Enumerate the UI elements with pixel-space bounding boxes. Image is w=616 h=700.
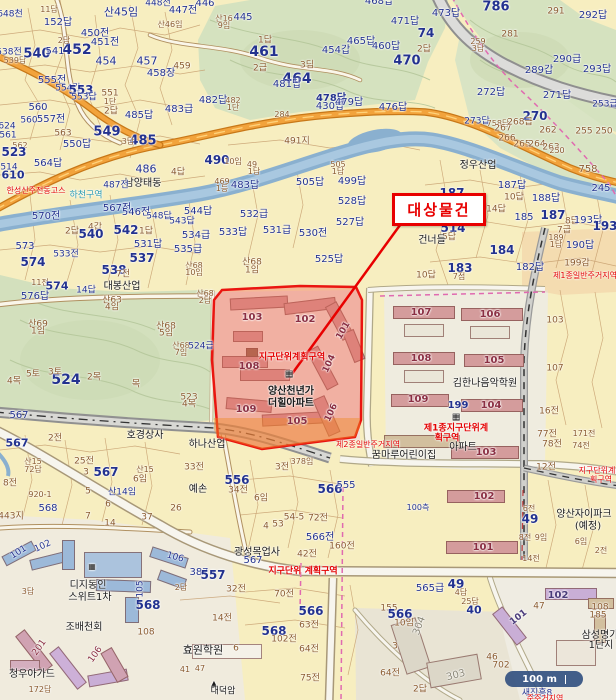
map-label: 4목 xyxy=(182,401,196,410)
map-label: 75전 xyxy=(300,675,320,684)
map-label: 538 xyxy=(101,264,126,276)
map-label: 292답 xyxy=(579,11,607,21)
map-label: 273답 xyxy=(464,118,489,127)
map-label: 264 xyxy=(528,141,545,150)
map-label: 5 xyxy=(85,488,91,497)
map-label: 8전 xyxy=(519,534,531,542)
map-label: 293답 xyxy=(583,65,611,75)
map-label: 37 xyxy=(141,514,152,523)
map-label: 2답 xyxy=(175,584,187,592)
map-label: 566 xyxy=(298,605,323,617)
map-label: 284 xyxy=(274,111,289,119)
map-label: 101 xyxy=(509,609,529,628)
map-label: 457 xyxy=(137,56,158,67)
map-label: 광성목업사 xyxy=(234,548,280,558)
map-label: 101 xyxy=(9,545,28,562)
map-label: 464 xyxy=(282,72,311,86)
map-label: 560 xyxy=(28,103,47,113)
map-label: 14답 xyxy=(486,206,506,215)
map-label: 102 xyxy=(548,591,569,601)
map-label: 10답 xyxy=(416,272,436,281)
map-label: 542 xyxy=(113,224,138,236)
map-label: 호경상사 xyxy=(127,431,164,441)
map-label: 효원학원 xyxy=(183,645,223,656)
map-label: 574 xyxy=(46,281,69,292)
map-label: 3답 xyxy=(122,138,134,146)
map-label: 제1종지구단위계 xyxy=(424,425,488,434)
map-label: 443지 xyxy=(0,513,24,522)
map-label: 4임 xyxy=(105,304,119,313)
map-label: 26 xyxy=(170,505,181,514)
map-label: 473답 xyxy=(432,9,460,19)
map-label: 7 xyxy=(85,513,91,522)
map-label: 648천 xyxy=(0,11,23,20)
map-label: 454갑 xyxy=(322,46,350,56)
map-label: 567전 xyxy=(103,204,131,214)
map-label: 11답 xyxy=(40,6,58,14)
map-label: 청우아가드 xyxy=(9,670,55,680)
map-label: 양산자이파크 xyxy=(556,510,611,520)
map-label: 430답 xyxy=(316,102,344,112)
map-label: 272답 xyxy=(477,88,505,98)
map-label: 산68 xyxy=(156,323,176,332)
map-label: 10임 xyxy=(224,158,242,166)
map-label: 524 xyxy=(51,373,80,387)
map-label: 102전 xyxy=(271,636,296,645)
map-label: 산15 xyxy=(136,466,154,474)
map-label: 265 xyxy=(513,141,530,150)
map-label: 459 xyxy=(173,63,190,72)
map-label: 1답 xyxy=(139,228,153,237)
map-label: 573 xyxy=(15,242,34,252)
map-label: 551 xyxy=(101,90,118,99)
map-label: 새진흥8 xyxy=(522,690,553,699)
map-label: 530전 xyxy=(299,229,327,239)
map-label: 꿈마루어린이집 xyxy=(372,451,436,461)
map-label: 64전 xyxy=(380,670,400,679)
target-callout-label: 대상물건 xyxy=(407,199,470,220)
map-label: 6 xyxy=(105,501,111,510)
map-label: 107 xyxy=(411,308,432,318)
map-label: 460답 xyxy=(372,42,400,52)
map-label: 109 xyxy=(236,405,257,415)
map-label: 102 xyxy=(295,315,316,325)
map-label: 566 xyxy=(387,608,412,620)
map-label: 스위트1차 xyxy=(68,593,111,603)
map-label: 77전 xyxy=(537,431,557,440)
map-label: 281 xyxy=(501,31,518,40)
map-label: 566전 xyxy=(306,533,334,543)
map-label: 33전 xyxy=(184,464,204,473)
map-label: 108 xyxy=(239,362,260,372)
map-label: 538전 xyxy=(0,49,22,58)
map-label: 557전 xyxy=(37,115,65,125)
map-label: 531급 xyxy=(263,226,291,236)
map-label: 1임 xyxy=(31,328,45,337)
map-label: 47 xyxy=(533,603,544,612)
map-label: 40 xyxy=(466,605,481,616)
map-label: 524급 xyxy=(188,343,213,352)
map-label: 193답 xyxy=(574,216,602,226)
map-label: 2전 xyxy=(48,435,62,444)
map-label: 하천구역 xyxy=(69,192,102,201)
scale-bar-label: 100 m xyxy=(522,674,557,685)
map-label: 104 xyxy=(322,354,338,375)
map-label: 산45임 xyxy=(104,7,138,18)
map-label: 2답 xyxy=(65,228,79,237)
map-label: 505 xyxy=(330,161,345,169)
map-label: 5토 xyxy=(26,371,40,380)
map-label: 268급 xyxy=(507,119,532,128)
map-label: 3 xyxy=(83,469,89,478)
map-label: 483급 xyxy=(165,105,193,115)
map-label: 188답 xyxy=(532,194,560,204)
map-label: 531답 xyxy=(134,240,162,250)
map-label: 대봉산업 xyxy=(104,282,141,292)
map-label: 567 xyxy=(6,438,29,449)
map-label: 253급 xyxy=(592,101,616,110)
map-label: 557 xyxy=(200,569,225,581)
map-label: 566 xyxy=(317,483,342,495)
map-label: 14전 xyxy=(522,555,540,563)
map-label: 103 xyxy=(476,448,497,458)
map-label: 185 xyxy=(514,213,533,223)
map-label: 74 xyxy=(418,27,435,39)
map-label: 산14임 xyxy=(108,489,136,498)
map-label: 7급 xyxy=(557,227,571,236)
map-label: 291 xyxy=(547,8,564,17)
map-label: 549 xyxy=(93,126,120,139)
map-label: 70전 xyxy=(274,591,294,600)
map-label: 3 xyxy=(392,643,398,652)
map-label: 54-5 xyxy=(284,514,304,523)
map-label: 25답 xyxy=(461,598,479,606)
map-label: 6임 xyxy=(133,476,147,485)
map-label: 106 xyxy=(480,310,501,320)
map-label: 555 xyxy=(336,481,355,491)
map-label: 남양태동 xyxy=(125,179,162,189)
map-label: 451전 xyxy=(91,38,119,48)
map-label: 2답 xyxy=(104,108,118,117)
map-label: 487전 xyxy=(103,182,128,191)
map-label: 4답 xyxy=(171,169,185,178)
map-label: 제2종일반주거지역 xyxy=(336,441,400,449)
map-label: 193 xyxy=(592,220,616,232)
map-label: 49 xyxy=(522,513,539,525)
map-label: 10임 xyxy=(394,620,414,629)
map-label: 564답 xyxy=(34,159,62,169)
map-label: 2답 xyxy=(417,46,431,55)
map-label: 478답 xyxy=(316,94,346,104)
map-label: 533답 xyxy=(219,228,247,238)
map-label: 목 xyxy=(132,381,140,390)
map-label: 106 xyxy=(166,551,185,564)
map-label: 562 xyxy=(12,142,27,150)
map-label: 2답 xyxy=(413,686,427,695)
map-label: 102 xyxy=(33,539,52,554)
map-label: ▲ xyxy=(211,680,217,688)
map-label: 461 xyxy=(249,45,278,59)
map-label: 172답 xyxy=(29,686,52,694)
map-label: 14전 xyxy=(212,615,232,624)
map-label: 1답 xyxy=(248,168,260,176)
map-label: 250 xyxy=(549,147,564,155)
map-label: 산15 xyxy=(24,458,42,466)
map-label: 제1종일반주거지역 xyxy=(553,272,616,280)
map-label: 14답 xyxy=(76,287,96,296)
map-label: 452 xyxy=(62,43,91,57)
map-label: 5답 xyxy=(442,234,456,243)
map-label: 산63 xyxy=(102,297,122,306)
map-label: (예정) xyxy=(575,522,601,532)
map-label: 155 xyxy=(380,605,397,614)
map-label: 1답 xyxy=(258,37,272,46)
map-label: 41 xyxy=(180,666,190,674)
map-label: 4 xyxy=(263,523,269,532)
map-label: 조배천회 xyxy=(66,623,103,633)
map-label: 152답 xyxy=(44,18,72,28)
map-label: 삼성명가 xyxy=(582,631,616,641)
scale-bar: 100 m xyxy=(505,671,583,687)
map-label: 53 xyxy=(272,521,283,530)
map-label: 하나산업 xyxy=(189,440,226,450)
map-label: 266 xyxy=(498,135,515,144)
map-label: 지구단위계획구역 xyxy=(259,354,325,363)
map-label: 263 xyxy=(542,144,559,153)
map-label: 527답 xyxy=(336,218,364,228)
map-label: 103 xyxy=(546,317,563,326)
map-label: 568 xyxy=(135,599,160,611)
map-label: 525답 xyxy=(315,255,343,265)
map-label: 576답 xyxy=(21,292,49,302)
map-label: 2답 xyxy=(199,297,211,305)
map-label: 106 xyxy=(324,403,340,424)
map-label: 105 xyxy=(287,417,308,427)
map-label: 702 xyxy=(492,662,509,671)
map-label: 539답 xyxy=(4,57,27,65)
map-label: 더힐아파트 xyxy=(268,399,314,409)
map-label: 49 xyxy=(247,161,257,169)
map-label: 485 xyxy=(129,135,156,148)
map-label: 14 xyxy=(104,520,115,529)
map-label: 1단 xyxy=(104,98,116,106)
map-label: 199 xyxy=(448,401,469,411)
map-label: 160전 xyxy=(329,543,354,552)
map-label: 72전 xyxy=(308,515,328,524)
map-label: 산68 xyxy=(242,259,262,268)
map-label: 74전 xyxy=(572,442,590,450)
map-label: 303 xyxy=(445,669,466,684)
scale-bar-tick xyxy=(565,675,566,684)
map-label: 25전 xyxy=(74,458,94,467)
map-label: 553답 xyxy=(71,94,96,103)
map-label: 486 xyxy=(136,164,157,175)
map-label: 245 xyxy=(591,184,610,194)
map-label: 570전 xyxy=(32,212,60,222)
map-label: 465답 xyxy=(347,37,375,47)
map-label: 101 xyxy=(335,321,352,342)
map-label: 468답 xyxy=(365,0,393,7)
map-label: 104 xyxy=(481,401,502,411)
map-label: 445 xyxy=(233,13,252,23)
map-label: 양산천년가 xyxy=(268,387,314,397)
map-label: 565급 xyxy=(416,584,444,594)
map-label: 469 xyxy=(214,178,229,186)
map-label: 6임 xyxy=(254,495,268,504)
map-label: 610 xyxy=(2,170,25,181)
target-callout[interactable]: 대상물건 xyxy=(392,193,486,226)
map-label: 499답 xyxy=(338,177,366,187)
map-label: 481답 xyxy=(273,80,301,90)
map-label: 102 xyxy=(474,492,495,502)
map-label: 171전 xyxy=(573,430,596,438)
map-label: 786 xyxy=(482,1,509,14)
map-label: 187답 xyxy=(498,181,526,191)
map-label: 4답 xyxy=(455,589,467,597)
labels-layer: 648천11답152답산45임448전447전산46임450전451전4522답… xyxy=(0,0,616,700)
map-label: 479답 xyxy=(335,98,363,108)
map-label: 182답 xyxy=(516,263,544,273)
map-label: ▦ xyxy=(452,414,461,423)
map-label: 11전 xyxy=(31,279,49,287)
map-label: 디지동인 xyxy=(70,581,107,591)
map-label: 535급 xyxy=(174,245,202,255)
map-label: 32전 xyxy=(226,586,246,595)
map-label: 산46임 xyxy=(158,21,183,29)
map-label: 107 xyxy=(546,365,563,374)
map-label: 568 xyxy=(261,625,286,637)
map-label: 920-1 xyxy=(28,491,51,499)
map-label: 건너들 xyxy=(418,236,446,246)
map-label: 획구역 xyxy=(590,476,612,484)
map-label: 259 xyxy=(470,38,485,46)
map-label: 108 xyxy=(591,604,608,613)
map-label: 290급 xyxy=(553,55,581,65)
map-label: 568 xyxy=(38,504,57,514)
map-label: 106 xyxy=(87,645,104,664)
map-label: 9임 xyxy=(535,534,547,542)
map-label: 6 xyxy=(233,645,239,654)
map-label: 2답 xyxy=(58,37,70,45)
map-label: 101 xyxy=(473,543,494,553)
map-label: 482답 xyxy=(199,96,227,106)
map-label: 3전 xyxy=(275,464,289,473)
map-label: 482 xyxy=(225,97,240,105)
map-label: 3딤 xyxy=(300,62,314,71)
map-label: 447전 xyxy=(169,6,197,16)
map-label: 8전 xyxy=(3,480,17,489)
map-label: 63전 xyxy=(299,622,319,631)
map-label: 490 xyxy=(204,154,229,166)
map-label: 554간 xyxy=(55,85,80,94)
map-label: 556 xyxy=(224,474,249,486)
map-label: 567 xyxy=(243,556,262,566)
map-label: 78전 xyxy=(542,441,562,450)
map-label: 540 xyxy=(78,228,103,240)
map-label: 1임 xyxy=(245,267,259,276)
map-label: 109 xyxy=(408,395,429,405)
map-label: 준주거지역 xyxy=(527,695,564,700)
map-label: 3답 xyxy=(472,45,484,53)
map-label: 523 xyxy=(1,146,26,158)
map-label: 1답 xyxy=(332,168,344,176)
map-label: 4갑 xyxy=(88,224,102,233)
map-label: 16전 xyxy=(539,408,559,417)
map-label: 476답 xyxy=(379,103,407,113)
map-label: 8답 xyxy=(565,218,579,227)
map-label: 534급 xyxy=(182,231,210,241)
map-label: 183 xyxy=(447,262,472,274)
map-label: 105 xyxy=(137,580,146,597)
map-label: 184 xyxy=(489,244,514,256)
map-label: 537 xyxy=(129,252,154,264)
map-label: 561 xyxy=(0,132,17,141)
map-label: 산68 xyxy=(172,342,190,350)
map-label: 105 xyxy=(484,356,505,366)
map-label: 544답 xyxy=(184,207,212,217)
map-label: ▦ xyxy=(285,371,294,380)
map-label: 산68 xyxy=(196,290,214,298)
map-label: 485답 xyxy=(125,111,153,121)
map-label: 548답 xyxy=(146,213,171,222)
map-label: 김한나음악학원 xyxy=(453,379,517,389)
map-label: 72답 xyxy=(24,466,42,474)
map-label: 2목 xyxy=(87,374,101,383)
map-label: 270 xyxy=(522,110,547,122)
map-label: 100측 xyxy=(407,504,430,512)
map-label: 289갑 xyxy=(525,66,553,76)
map-label: 지구단위계 xyxy=(579,467,616,475)
map-label: 획구역 xyxy=(435,435,460,444)
map-label: 산68 xyxy=(185,262,203,270)
map-label: 250 xyxy=(595,128,612,137)
map-label: 199감 xyxy=(564,260,589,269)
map-label: 454 xyxy=(96,56,117,67)
map-label: 450전 xyxy=(81,29,109,39)
map-label: 201 xyxy=(31,638,48,657)
map-label: 505답 xyxy=(296,178,324,188)
map-label: 567 xyxy=(9,411,28,421)
map-label: 예손 xyxy=(189,485,207,495)
map-label: 산16 xyxy=(215,15,233,23)
map-label: 471답 xyxy=(391,17,419,27)
map-label: 7전 xyxy=(116,271,130,280)
map-label: 42전 xyxy=(297,551,317,560)
map-label: 541 xyxy=(45,47,64,57)
map-label: 1단지 xyxy=(589,641,614,651)
map-label: 533전 xyxy=(53,251,78,260)
map-label: 546전 xyxy=(122,208,150,218)
map-canvas[interactable]: 648천11답152답산45임448전447전산46임450전451전4522답… xyxy=(0,0,616,700)
map-label: 산69 xyxy=(28,321,48,330)
map-label: 553 xyxy=(68,84,93,96)
map-label: 567 xyxy=(93,466,118,478)
map-label: 378임 xyxy=(291,458,314,466)
map-label: 4목 xyxy=(7,378,21,387)
map-label: 46 xyxy=(486,654,497,663)
map-label: 185 xyxy=(589,612,606,621)
map-label: 271답 xyxy=(543,91,571,101)
map-label: 387 xyxy=(189,568,208,578)
map-label: 5임 xyxy=(159,330,173,339)
map-label: 3토 xyxy=(48,369,62,378)
map-label: 1단 xyxy=(227,104,239,112)
map-label: 아파트 xyxy=(449,443,477,453)
map-label: 정우산업 xyxy=(460,161,497,171)
map-label: 560 xyxy=(20,117,37,126)
map-label: 187 xyxy=(540,209,565,221)
map-label: 12전 xyxy=(536,464,556,473)
